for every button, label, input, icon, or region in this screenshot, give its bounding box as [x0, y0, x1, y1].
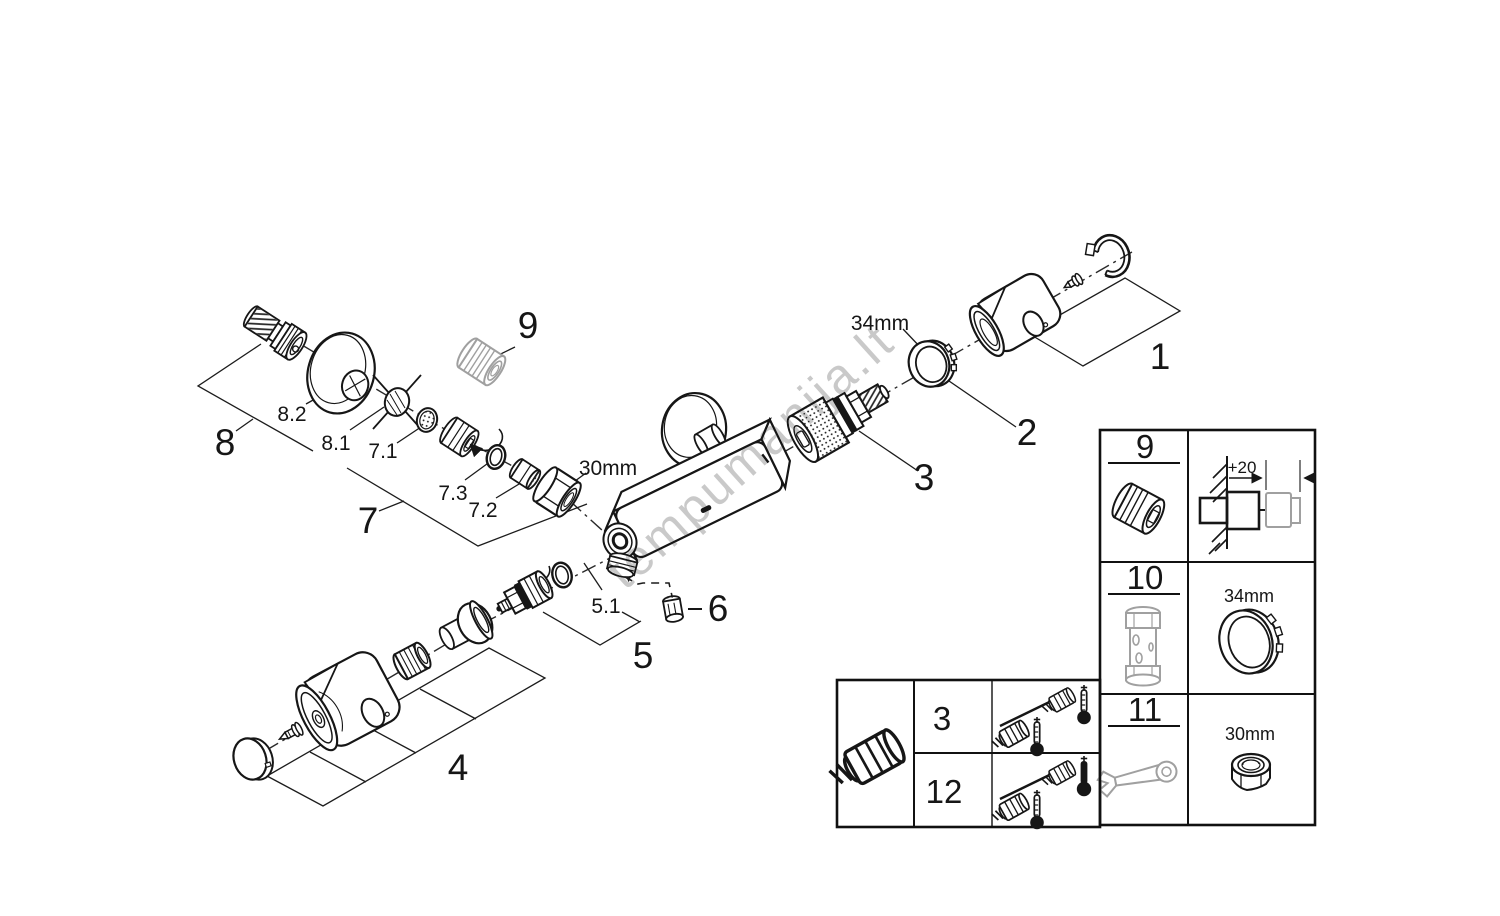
part-4-adapter-nut	[390, 641, 433, 682]
wrench-icon	[1096, 758, 1178, 798]
label-5: 5	[633, 635, 654, 676]
leader-8-1	[350, 407, 384, 430]
label-30mm: 30mm	[579, 457, 637, 480]
part-1-handle	[963, 269, 1066, 363]
cartridge-row-3-number: 3	[933, 700, 951, 737]
hex-nut-30mm-icon	[1232, 754, 1270, 790]
part-1-cap-clip	[1082, 231, 1134, 283]
part-4-handle-screw	[276, 721, 304, 745]
part-9-extension-adapter	[454, 336, 509, 388]
label-7-3: 7.3	[438, 482, 467, 505]
accessories-table: 9 10 11 +20	[1096, 428, 1315, 825]
extension-adapter-icon	[1108, 481, 1168, 537]
exploded-parts-diagram-page: 8 8.2 8.1 7.1 7.3 7.2 7 9 30mm 34mm 3 2 …	[0, 0, 1500, 916]
leader-3	[859, 431, 918, 471]
leader-2	[949, 381, 1016, 427]
part-8-1-seal-marked	[373, 375, 421, 429]
label-6: 6	[708, 588, 729, 629]
mounting-sleeve-icon	[1126, 607, 1160, 686]
label-9: 9	[518, 305, 539, 346]
table-row-9-number: 9	[1136, 428, 1154, 465]
label-8-1: 8.1	[321, 432, 350, 455]
part-4-flange	[433, 597, 500, 659]
label-2: 2	[1017, 412, 1038, 453]
table-label-34mm: 34mm	[1224, 586, 1274, 606]
part-1-handle-screw	[1061, 273, 1084, 293]
part-7-1-filter-screen	[414, 406, 440, 435]
part-5-1-o-ring	[550, 560, 575, 589]
label-8-2: 8.2	[277, 403, 306, 426]
table-row-10-number: 10	[1127, 559, 1164, 596]
table-row-11-number: 11	[1128, 691, 1162, 728]
part-8-2-escutcheon	[298, 324, 384, 421]
ring-nut-34mm-icon	[1211, 600, 1291, 681]
part-5-diverter-cartridge	[490, 569, 556, 623]
label-7: 7	[358, 500, 379, 541]
cartridge-table: 3 12	[825, 680, 1100, 829]
label-plus20: +20	[1228, 458, 1257, 477]
part-6-insert	[662, 595, 683, 623]
label-3: 3	[914, 457, 935, 498]
extension-plus20-diagram: +20	[1200, 456, 1312, 554]
part-8-s-union	[239, 301, 310, 363]
watermark-text: tempumanija.lt	[595, 312, 905, 599]
part-7-3-connector	[437, 415, 482, 459]
parts-diagram-canvas: 8 8.2 8.1 7.1 7.3 7.2 7 9 30mm 34mm 3 2 …	[0, 0, 1500, 916]
part-4-handle	[287, 647, 405, 758]
label-5-1: 5.1	[591, 595, 620, 618]
label-7-1: 7.1	[368, 440, 397, 463]
label-8: 8	[215, 422, 236, 463]
cartridge-row-12-number: 12	[926, 773, 963, 810]
leader-7-1	[397, 427, 421, 443]
label-7-2: 7.2	[468, 499, 497, 522]
part-7-o-ring	[484, 443, 508, 471]
table-label-30mm: 30mm	[1225, 724, 1275, 744]
label-4: 4	[448, 747, 469, 788]
temperature-calibration-hot-icon	[990, 756, 1092, 829]
temperature-calibration-icon	[990, 685, 1091, 756]
label-1: 1	[1150, 336, 1171, 377]
